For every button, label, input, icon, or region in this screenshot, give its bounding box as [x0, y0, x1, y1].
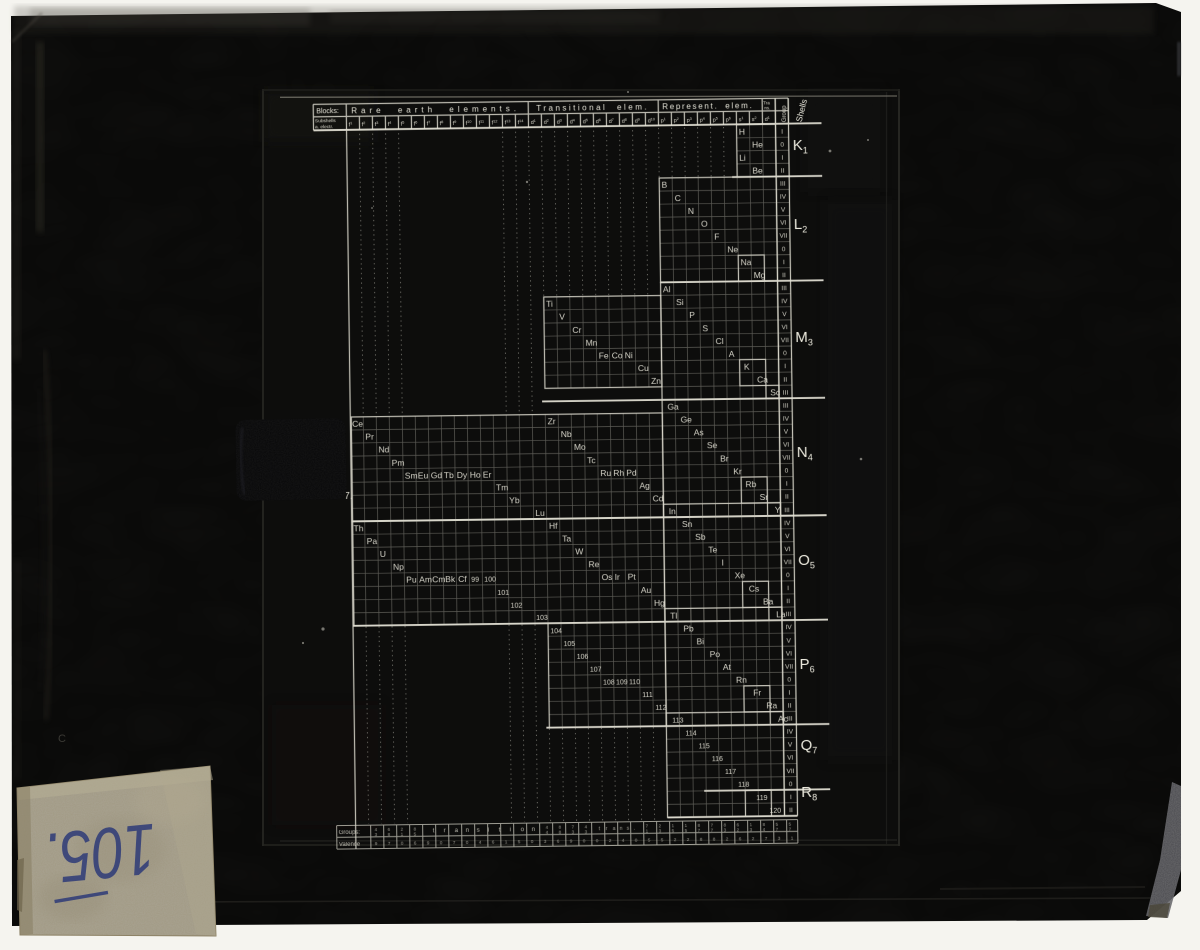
svg-text:Ni: Ni	[625, 350, 633, 360]
svg-text:C: C	[58, 733, 66, 745]
svg-text:.: .	[634, 826, 635, 832]
svg-text:VII: VII	[785, 663, 793, 670]
svg-text:II: II	[782, 272, 786, 279]
svg-text:108: 108	[603, 680, 615, 687]
svg-text:0: 0	[782, 246, 786, 253]
svg-text:Pa: Pa	[367, 536, 378, 546]
svg-text:Al: Al	[663, 284, 671, 294]
svg-text:113: 113	[672, 717, 683, 724]
svg-text:Tb: Tb	[444, 470, 454, 480]
svg-text:115: 115	[699, 743, 710, 750]
svg-text:119: 119	[756, 795, 767, 802]
svg-text:Ac: Ac	[778, 713, 789, 723]
svg-text:IV: IV	[784, 520, 791, 527]
svg-text:Ho: Ho	[470, 469, 481, 479]
svg-text:IV: IV	[781, 298, 788, 305]
svg-text:n: n	[532, 827, 535, 833]
svg-text:O: O	[701, 219, 708, 229]
svg-text:Valence: Valence	[339, 842, 361, 848]
svg-text:VII: VII	[781, 337, 789, 344]
svg-text:0: 0	[780, 142, 784, 149]
svg-text:Zr: Zr	[547, 416, 555, 426]
svg-text:Cd: Cd	[653, 493, 664, 503]
svg-text:Transitional elem.: Transitional elem.	[536, 102, 649, 112]
svg-text:Yb: Yb	[509, 495, 520, 505]
svg-text:Pr: Pr	[365, 432, 374, 442]
svg-text:Gd: Gd	[431, 470, 443, 480]
svg-text:V: V	[784, 429, 789, 436]
svg-text:Os: Os	[602, 572, 613, 582]
svg-text:Ga: Ga	[667, 402, 679, 412]
svg-text:I: I	[788, 690, 790, 697]
svg-text:Eu: Eu	[418, 470, 429, 480]
svg-text:B: B	[661, 180, 667, 190]
svg-text:II: II	[783, 376, 787, 383]
svg-text:111: 111	[642, 692, 653, 699]
svg-text:VII: VII	[782, 455, 790, 462]
svg-text:Y: Y	[775, 505, 781, 515]
svg-text:Pt: Pt	[628, 572, 637, 582]
svg-text:i: i	[488, 828, 489, 834]
svg-text:Mg: Mg	[754, 270, 766, 280]
svg-text:II: II	[788, 703, 792, 710]
svg-text:In: In	[669, 506, 676, 516]
svg-text:Pu: Pu	[406, 575, 417, 585]
svg-text:99: 99	[471, 577, 479, 584]
svg-text:Au: Au	[641, 585, 652, 595]
svg-text:II: II	[789, 807, 793, 814]
svg-text:Sc: Sc	[770, 387, 781, 397]
svg-text:La: La	[776, 609, 786, 619]
svg-text:Hg: Hg	[654, 598, 665, 608]
svg-text:Li: Li	[739, 153, 746, 163]
svg-text:VI: VI	[784, 546, 790, 553]
svg-text:Sb: Sb	[695, 532, 706, 542]
svg-text:Ra: Ra	[766, 701, 777, 711]
svg-text:Dy: Dy	[457, 470, 468, 480]
svg-text:0: 0	[789, 781, 793, 788]
svg-text:I: I	[783, 259, 785, 266]
svg-text:III: III	[780, 181, 786, 188]
svg-text:Cl: Cl	[715, 336, 723, 346]
svg-text:Cf: Cf	[458, 574, 467, 584]
svg-text:II: II	[781, 168, 785, 175]
svg-text:P: P	[689, 310, 695, 320]
svg-text:H: H	[739, 127, 745, 137]
svg-text:117: 117	[725, 769, 736, 776]
svg-text:Se: Se	[707, 440, 718, 450]
svg-text:Sn: Sn	[682, 519, 693, 529]
svg-text:I: I	[787, 585, 789, 592]
svg-text:Co: Co	[612, 350, 623, 360]
svg-text:Tc: Tc	[587, 455, 596, 465]
svg-text:Cu: Cu	[638, 363, 649, 373]
svg-text:100: 100	[484, 577, 496, 584]
svg-text:Am: Am	[419, 575, 432, 585]
svg-text:Cr: Cr	[572, 325, 581, 335]
svg-text:C: C	[675, 193, 681, 203]
svg-text:VII: VII	[784, 559, 792, 566]
svg-text:Ta: Ta	[562, 534, 571, 544]
svg-text:Rn: Rn	[736, 675, 747, 685]
svg-text:103: 103	[536, 615, 548, 622]
svg-text:Er: Er	[483, 469, 492, 479]
svg-text:Be: Be	[752, 166, 763, 176]
svg-text:N: N	[688, 206, 694, 216]
svg-text:Rb: Rb	[745, 479, 756, 489]
svg-text:Tl: Tl	[670, 610, 677, 620]
svg-text:II: II	[785, 494, 789, 501]
svg-text:Ce: Ce	[352, 419, 363, 429]
svg-text:Bk: Bk	[445, 574, 456, 584]
svg-text:Xe: Xe	[735, 570, 746, 580]
svg-text:V: V	[788, 742, 793, 749]
svg-text:V: V	[781, 207, 786, 214]
svg-text:As: As	[694, 427, 704, 437]
svg-text:S: S	[702, 323, 708, 333]
svg-text:Sm: Sm	[405, 470, 418, 480]
svg-text:Pm: Pm	[392, 457, 405, 467]
svg-text:Te: Te	[708, 545, 717, 555]
svg-text:Bi: Bi	[696, 636, 704, 646]
svg-text:Ir: Ir	[615, 572, 620, 582]
svg-text:Br: Br	[720, 453, 729, 463]
svg-text:Sr: Sr	[760, 492, 769, 502]
svg-text:I: I	[781, 155, 783, 162]
svg-text:0: 0	[786, 572, 790, 579]
svg-text:ns.: ns.	[764, 105, 770, 110]
svg-text:Blocks:: Blocks:	[316, 108, 339, 115]
svg-text:V: V	[782, 311, 787, 318]
svg-text:r: r	[444, 828, 446, 834]
svg-text:104: 104	[550, 628, 562, 635]
svg-text:III: III	[783, 403, 789, 410]
svg-text:Hf: Hf	[549, 521, 558, 531]
svg-text:0: 0	[785, 468, 789, 475]
svg-text:V: V	[559, 312, 565, 322]
svg-text:III: III	[784, 507, 790, 514]
svg-text:Ru: Ru	[600, 468, 611, 478]
svg-text:106: 106	[577, 654, 589, 661]
svg-text:107: 107	[590, 667, 602, 674]
svg-text:109: 109	[616, 679, 628, 686]
svg-text:Subshells: Subshells	[315, 118, 336, 124]
svg-text:Np: Np	[393, 562, 404, 572]
svg-text:III: III	[786, 611, 792, 618]
svg-text:K: K	[744, 362, 750, 372]
svg-text:Ca: Ca	[757, 374, 768, 384]
svg-text:s: s	[477, 828, 480, 834]
svg-text:Ba: Ba	[763, 596, 774, 606]
svg-text:I: I	[781, 129, 783, 136]
svg-text:Re: Re	[588, 559, 599, 569]
svg-text:VI: VI	[783, 442, 789, 449]
svg-text:105.: 105.	[41, 808, 160, 898]
svg-text:114: 114	[685, 730, 696, 737]
svg-text:V: V	[787, 637, 792, 644]
svg-text:Represent. elem.: Represent. elem.	[662, 101, 753, 111]
svg-text:116: 116	[712, 756, 723, 763]
svg-text:0: 0	[783, 350, 787, 357]
svg-text:Rh: Rh	[613, 468, 624, 478]
svg-text:VI: VI	[786, 650, 792, 657]
svg-text:VI: VI	[787, 755, 793, 762]
svg-text:Si: Si	[676, 297, 684, 307]
svg-text:0: 0	[787, 677, 791, 684]
svg-text:Mn: Mn	[585, 337, 597, 347]
svg-text:Pb: Pb	[683, 623, 694, 633]
svg-text:III: III	[783, 389, 789, 396]
svg-text:Po: Po	[710, 649, 721, 659]
svg-text:Nd: Nd	[378, 445, 389, 455]
svg-text:I: I	[784, 363, 786, 370]
svg-text:Tm: Tm	[496, 482, 508, 492]
svg-text:V: V	[785, 533, 790, 540]
svg-text:IV: IV	[783, 416, 790, 423]
svg-text:Th: Th	[353, 523, 363, 533]
svg-text:He: He	[752, 140, 763, 150]
svg-text:Mo: Mo	[574, 442, 586, 452]
svg-text:VII: VII	[786, 768, 794, 775]
svg-text:I: I	[721, 558, 724, 568]
svg-text:IV: IV	[780, 194, 787, 201]
svg-text:IV: IV	[787, 729, 794, 736]
svg-text:I: I	[790, 794, 792, 801]
svg-text:A: A	[729, 349, 735, 359]
svg-text:Zn: Zn	[651, 376, 661, 386]
svg-text:Cs: Cs	[749, 583, 760, 593]
svg-text:VI: VI	[780, 220, 786, 227]
svg-text:VII: VII	[779, 233, 787, 240]
svg-text:III: III	[781, 285, 787, 292]
svg-text:Pd: Pd	[626, 467, 637, 477]
svg-text:112: 112	[655, 705, 666, 712]
svg-text:105: 105	[563, 641, 575, 648]
svg-text:Ne: Ne	[727, 244, 738, 254]
svg-text:Fr: Fr	[753, 688, 761, 698]
svg-text:II: II	[786, 598, 790, 605]
svg-text:Fe: Fe	[599, 350, 609, 360]
svg-text:Group: Group	[782, 105, 788, 122]
svg-text:118: 118	[738, 782, 749, 789]
svg-text:Na: Na	[740, 257, 751, 267]
svg-text:I: I	[786, 481, 788, 488]
svg-text:Nb: Nb	[561, 429, 572, 439]
svg-text:U: U	[380, 549, 386, 559]
svg-text:Cm: Cm	[432, 574, 445, 584]
svg-text:At: At	[723, 662, 732, 672]
svg-text:i: i	[510, 827, 511, 833]
svg-text:F: F	[714, 231, 719, 241]
svg-text:Ti: Ti	[546, 299, 553, 309]
svg-text:Lu: Lu	[535, 508, 545, 518]
svg-text:a: a	[613, 826, 616, 832]
svg-text:110: 110	[629, 679, 640, 686]
svg-text:Kr: Kr	[733, 466, 742, 476]
svg-text:120: 120	[769, 808, 781, 815]
svg-text:Ag: Ag	[639, 480, 650, 490]
svg-text:a. electr.: a. electr.	[315, 124, 333, 130]
svg-text:n: n	[620, 826, 623, 832]
svg-text:Ge: Ge	[680, 415, 692, 425]
svg-text:n: n	[466, 828, 469, 834]
svg-text:IV: IV	[785, 624, 792, 631]
svg-text:W: W	[575, 546, 583, 556]
svg-text:Groups:: Groups:	[339, 830, 361, 836]
svg-text:101: 101	[497, 590, 509, 597]
svg-text:VI: VI	[781, 324, 787, 331]
svg-text:102: 102	[511, 602, 523, 609]
